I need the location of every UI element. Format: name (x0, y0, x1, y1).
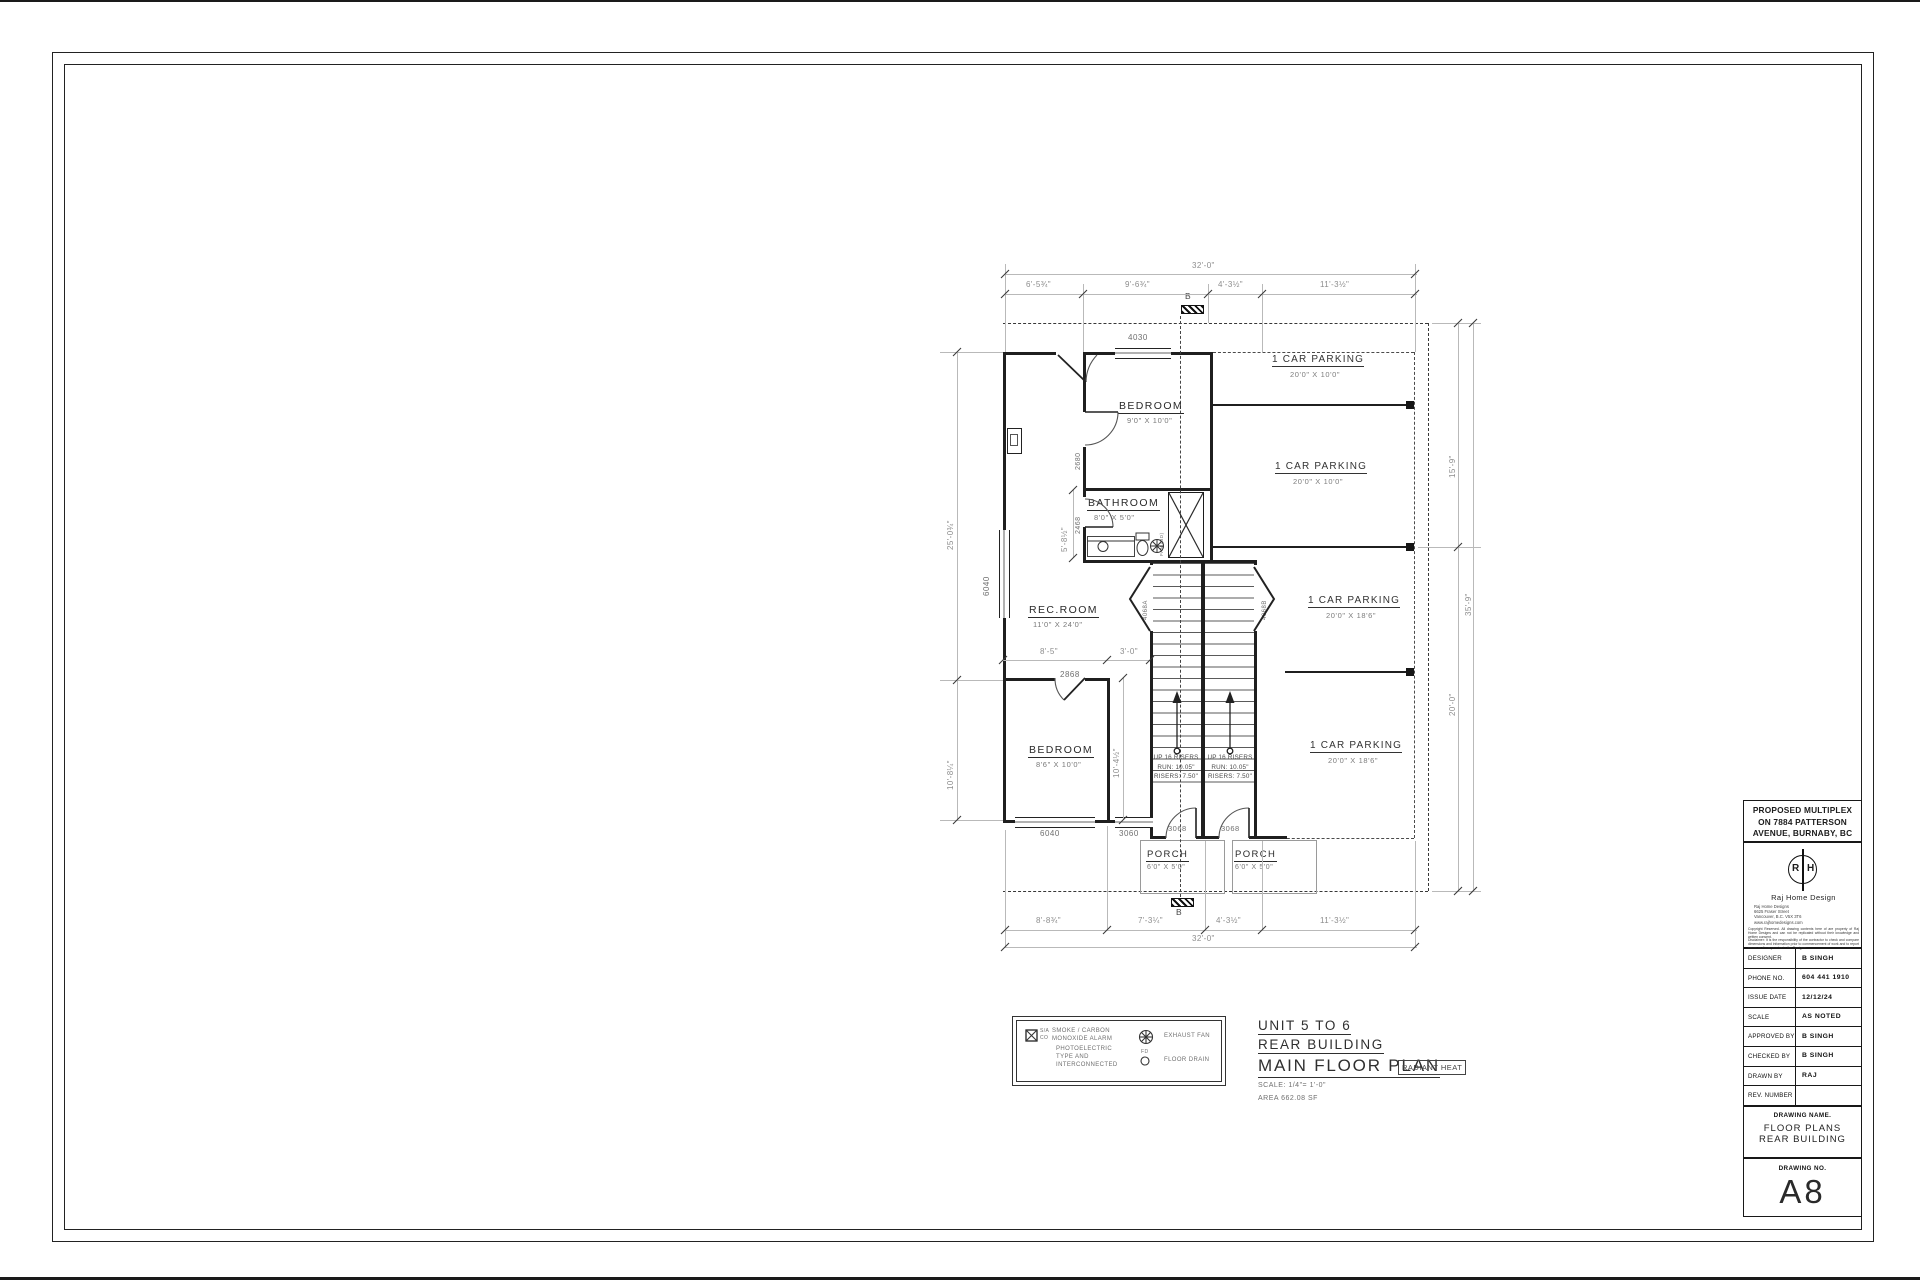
info-value: RAJ (1796, 1067, 1861, 1086)
drawing-sheet: B B BEDROOM 9'0" X 10'0" BATHROOM 8'0" X… (0, 0, 1920, 1280)
title-block: PROPOSED MULTIPLEX ON 7884 PATTERSON AVE… (1743, 800, 1862, 1217)
toilet-icon (1136, 533, 1149, 556)
info-label: CHECKED BY (1744, 1047, 1796, 1066)
info-row-approved: APPROVED BYB SINGH (1744, 1027, 1861, 1047)
drawing-no: A8 (1744, 1173, 1861, 1211)
project-line: AVENUE, BURNABY, BC (1744, 828, 1861, 840)
info-row-phone: PHONE NO.604 441 1910 (1744, 969, 1861, 989)
legend-exhaust-fan: EXHAUST FAN (1164, 1033, 1210, 1039)
legend-smoke-5: INTERCONNECTED (1056, 1062, 1118, 1068)
firm-address-line: Vancouver, B.C. V5X 3T6 (1754, 914, 1803, 919)
info-value: AS NOTED (1796, 1008, 1861, 1027)
drawing-no-box: DRAWING NO. A8 (1743, 1158, 1862, 1217)
info-value: B SINGH (1796, 1027, 1861, 1046)
title-unit: UNIT 5 TO 6 (1258, 1018, 1351, 1035)
info-value: B SINGH (1796, 1047, 1861, 1066)
title-area: AREA 662.08 SF (1258, 1095, 1318, 1102)
info-label: REV. NUMBER (1744, 1086, 1796, 1106)
info-row-designer: DESIGNERB SINGH (1744, 949, 1861, 969)
door-arcs (1055, 355, 1249, 838)
firm-address-line: www.rajhomedesigns.com (1754, 920, 1803, 925)
project-line: PROPOSED MULTIPLEX (1744, 805, 1861, 817)
info-row-issue-date: ISSUE DATE12/12/24 (1744, 988, 1861, 1008)
stair-double-doors (1130, 567, 1274, 631)
drawing-name-label: DRAWING NAME. (1744, 1112, 1861, 1119)
drawing-name-box: DRAWING NAME. FLOOR PLANS REAR BUILDING (1743, 1106, 1862, 1158)
info-row-checked: CHECKED BYB SINGH (1744, 1047, 1861, 1067)
legend-sa: S/A (1040, 1028, 1049, 1034)
exhaust-fan-icon (1151, 540, 1164, 553)
info-value: 12/12/24 (1796, 988, 1861, 1007)
legend-co: CO (1040, 1035, 1048, 1041)
legend-fd: FD (1141, 1049, 1148, 1055)
info-row-rev: REV. NUMBER (1744, 1086, 1861, 1106)
info-label: APPROVED BY (1744, 1027, 1796, 1046)
info-label: PHONE NO. (1744, 969, 1796, 988)
sink-icon (1087, 541, 1135, 552)
info-label: DRAWN BY (1744, 1067, 1796, 1086)
info-label: SCALE (1744, 1008, 1796, 1027)
info-label: DESIGNER (1744, 949, 1796, 968)
firm-address: Raj Home Designs 6625 Fraser Street Vanc… (1754, 904, 1803, 925)
legend-smoke-2: MONOXIDE ALARM (1052, 1036, 1112, 1042)
radiant-heat-badge: RADIANT HEAT (1398, 1060, 1466, 1075)
legend-smoke-4: TYPE AND (1056, 1054, 1089, 1060)
info-label: ISSUE DATE (1744, 988, 1796, 1007)
firm-name: Raj Home Design (1744, 893, 1863, 902)
legend-floor-drain: FLOOR DRAIN (1164, 1057, 1209, 1063)
project-box: PROPOSED MULTIPLEX ON 7884 PATTERSON AVE… (1743, 800, 1862, 842)
stair-up-arrows (1173, 691, 1235, 754)
legend-smoke-1: SMOKE / CARBON (1052, 1028, 1110, 1034)
drawing-name-line: REAR BUILDING (1744, 1134, 1861, 1145)
plan-linework (0, 0, 1920, 1280)
info-value: B SINGH (1796, 949, 1861, 968)
info-row-scale: SCALEAS NOTED (1744, 1008, 1861, 1028)
info-table: DESIGNERB SINGH PHONE NO.604 441 1910 IS… (1743, 948, 1862, 1106)
drawing-no-label: DRAWING NO. (1744, 1165, 1861, 1172)
x-brace-icon (1169, 493, 1203, 557)
project-line: ON 7884 PATTERSON (1744, 817, 1861, 829)
title-building: REAR BUILDING (1258, 1037, 1384, 1054)
firm-logo-letter-h: H (1807, 863, 1814, 874)
drawing-name-line: FLOOR PLANS (1744, 1123, 1861, 1134)
info-value (1796, 1086, 1861, 1106)
info-row-drawn: DRAWN BYRAJ (1744, 1067, 1861, 1087)
firm-box: R H Raj Home Design Raj Home Designs 662… (1743, 842, 1862, 948)
title-scale: SCALE: 1/4"= 1'-0" (1258, 1082, 1326, 1089)
dim-tick-marks (953, 270, 1477, 951)
firm-logo-letter-r: R (1792, 863, 1799, 874)
info-value: 604 441 1910 (1796, 969, 1861, 988)
legend-smoke-3: PHOTOELECTRIC (1056, 1046, 1112, 1052)
